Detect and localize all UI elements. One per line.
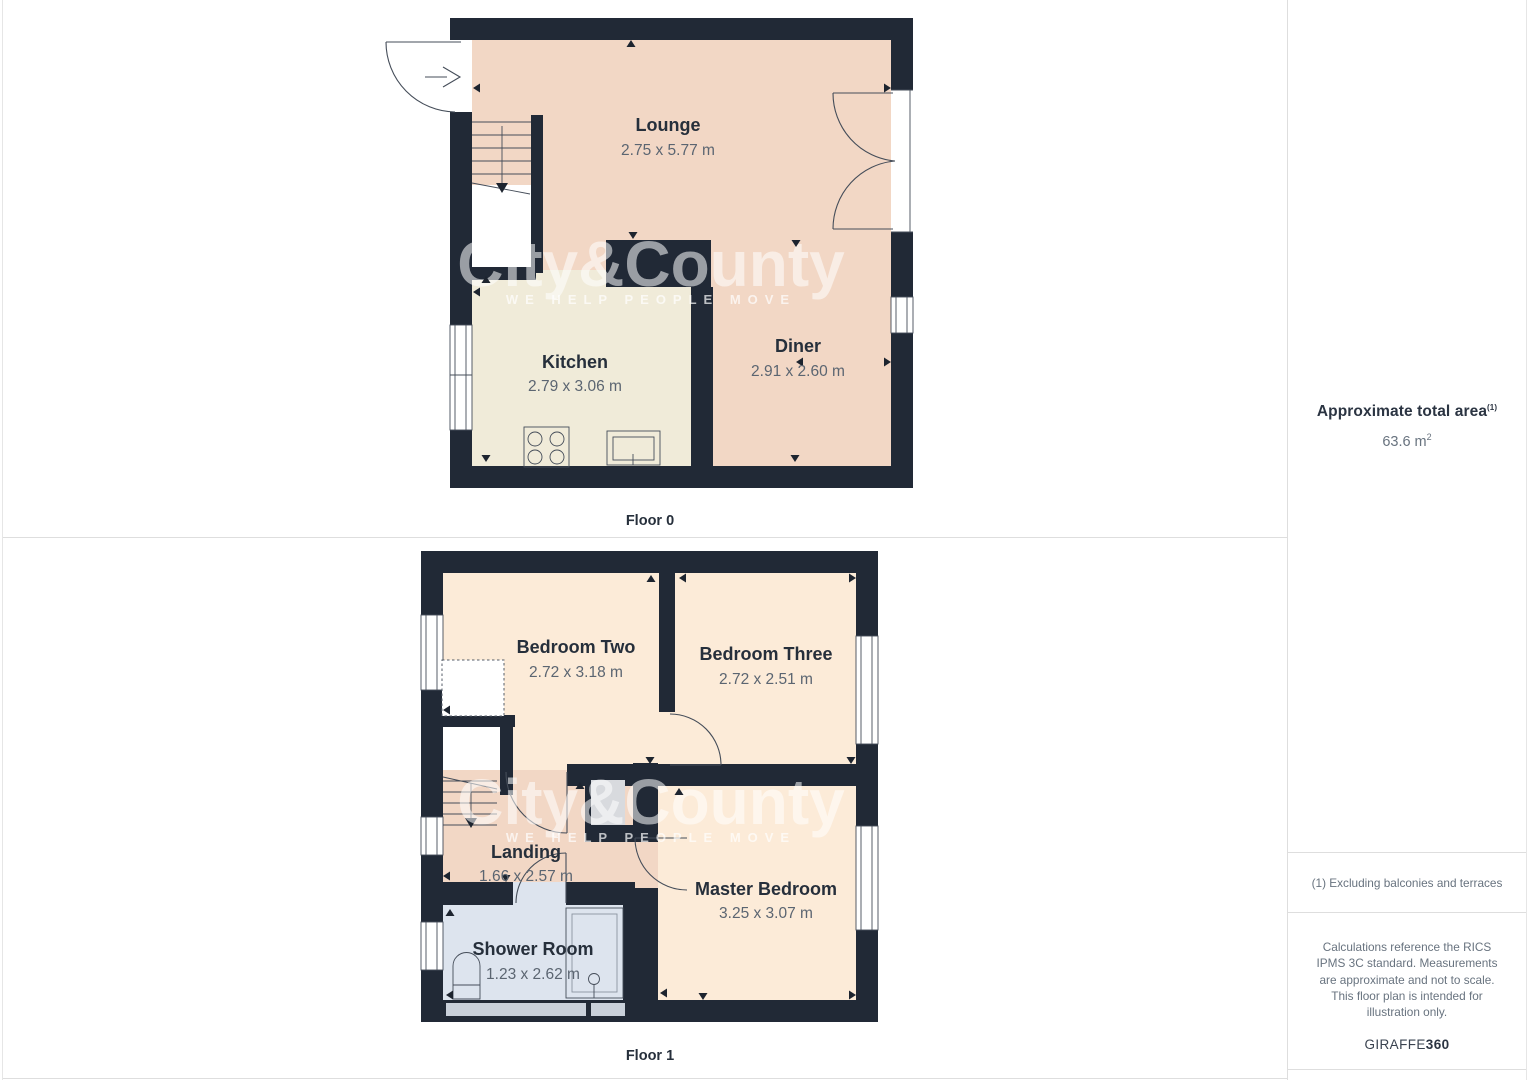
landing-label: Landing [491, 842, 561, 862]
shower-room-label: Shower Room [472, 939, 593, 959]
entrance-arrow-icon [425, 67, 460, 87]
total-area-value: 63.6 m2 [1382, 432, 1431, 450]
watermark-tagline: WE HELP PEOPLE MOVE [506, 292, 796, 307]
brand-secondary: 360 [1426, 1037, 1450, 1052]
total-area-title: Approximate total area(1) [1317, 403, 1497, 421]
shower-room-dims: 1.23 x 2.62 m [486, 966, 580, 983]
total-area-value-text: 63.6 m [1382, 433, 1426, 449]
watermark: City&County WE HELP PEOPLE MOVE [457, 228, 845, 307]
total-area-panel: Approximate total area(1) 63.6 m2 [1288, 0, 1526, 853]
bedroom-two-dims: 2.72 x 3.18 m [529, 664, 623, 681]
brand-logo: GIRAFFE360 [1364, 1037, 1449, 1052]
wardrobe [442, 660, 504, 716]
master-bedroom-label: Master Bedroom [695, 879, 837, 899]
total-area-title-sup: (1) [1487, 403, 1497, 412]
kitchen-label: Kitchen [542, 352, 608, 372]
diner-dims: 2.91 x 2.60 m [751, 363, 845, 380]
lounge-label: Lounge [636, 115, 701, 135]
landing-dims: 1.66 x 2.57 m [479, 868, 573, 885]
entrance-door [386, 42, 461, 112]
watermark-title: City&County [457, 228, 845, 300]
bedroom-three-label: Bedroom Three [699, 644, 832, 664]
floor1-section: City&County WE HELP PEOPLE MOVE [3, 538, 1287, 1079]
floor1-plan: City&County WE HELP PEOPLE MOVE [3, 538, 1287, 1078]
bedroom-three-dims: 2.72 x 2.51 m [719, 671, 813, 688]
footnote-panel: (1) Excluding balconies and terraces [1288, 853, 1526, 913]
lounge-dims: 2.75 x 5.77 m [621, 142, 715, 159]
total-area-title-text: Approximate total area [1317, 403, 1487, 420]
floor0-plan: City&County WE HELP PEOPLE MOVE [3, 0, 1287, 537]
floorplan-page: City&County WE HELP PEOPLE MOVE [0, 0, 1527, 1080]
watermark-floor1: City&County WE HELP PEOPLE MOVE [457, 766, 845, 845]
plan-column: City&County WE HELP PEOPLE MOVE [2, 0, 1287, 1080]
disclaimer-text: Calculations reference the RICS IPMS 3C … [1308, 939, 1506, 1020]
understair-void [443, 727, 500, 770]
brand-primary: GIRAFFE [1364, 1037, 1425, 1052]
total-area-value-sup: 2 [1427, 432, 1432, 442]
disclaimer-panel: Calculations reference the RICS IPMS 3C … [1288, 913, 1526, 1070]
floor0-caption: Floor 0 [626, 513, 674, 529]
diner-label: Diner [775, 336, 821, 356]
floor0-section: City&County WE HELP PEOPLE MOVE [3, 0, 1287, 538]
kitchen-dims: 2.79 x 3.06 m [528, 378, 622, 395]
master-bedroom-dims: 3.25 x 3.07 m [719, 905, 813, 922]
footnote-text: (1) Excluding balconies and terraces [1312, 876, 1503, 890]
info-sidebar: Approximate total area(1) 63.6 m2 (1) Ex… [1287, 0, 1527, 1080]
floor1-caption: Floor 1 [626, 1048, 674, 1064]
bathroom-units [446, 1003, 625, 1016]
bedroom-two-label: Bedroom Two [517, 637, 636, 657]
watermark-title: City&County [457, 766, 845, 838]
